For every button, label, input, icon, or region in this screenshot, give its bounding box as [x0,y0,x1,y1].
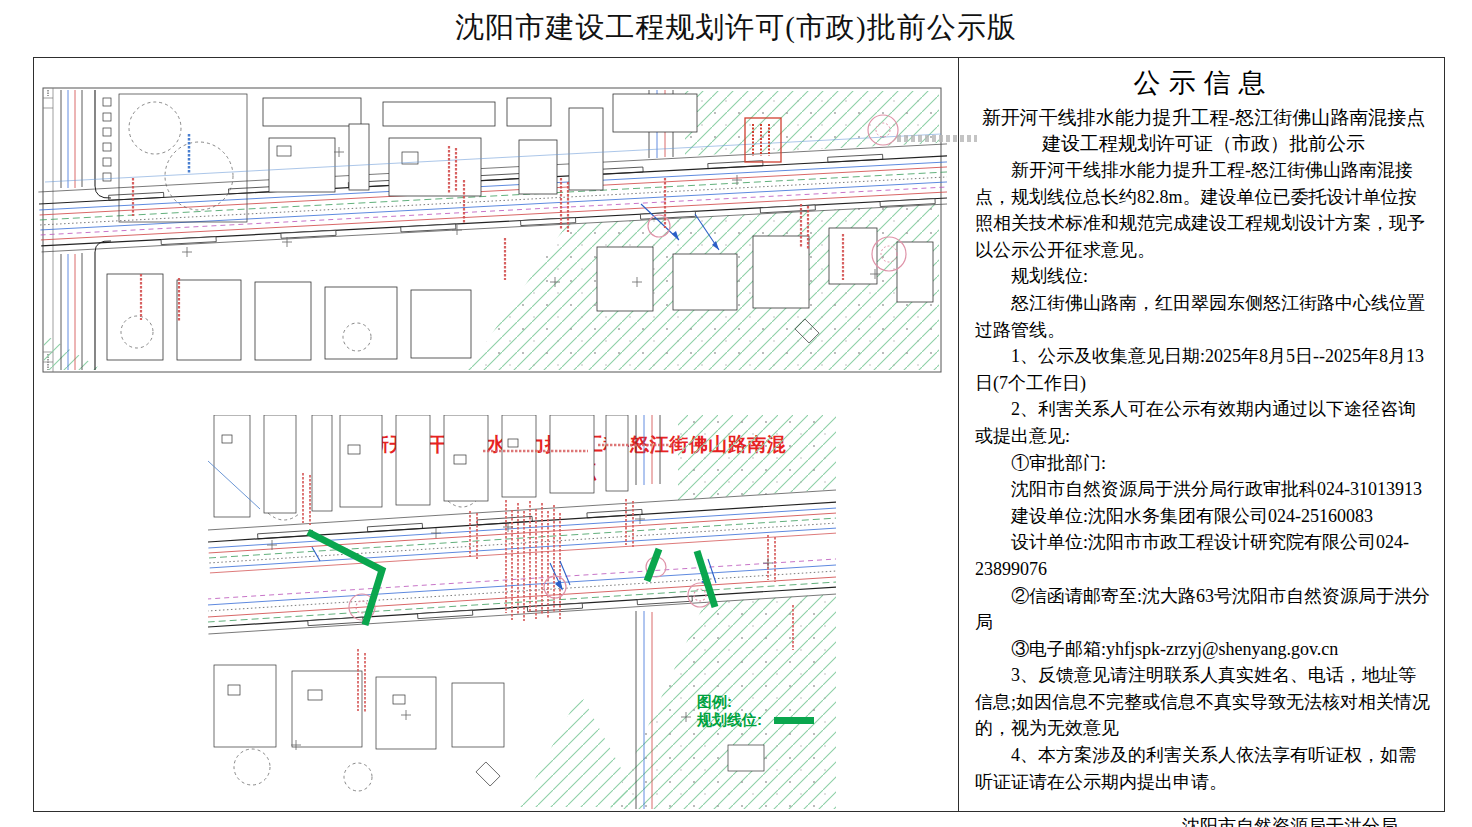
notice-panel: 公示信息 新开河干线排水能力提升工程-怒江街佛山路南混接点 建设工程规划许可证（… [958,57,1446,812]
notice-paragraph: 1、公示及收集意见日期:2025年8月5日--2025年8月13日(7个工作日) [975,343,1432,396]
notice-paragraph: 3、反馈意见请注明联系人真实姓名、电话，地址等信息;如因信息不完整或信息不真实导… [975,662,1432,742]
notice-paragraph: ②信函请邮寄至:沈大路63号沈阳市自然资源局于洪分局 [975,583,1432,636]
legend-item-label: 规划线位: [697,711,762,729]
notice-paragraph: 沈阳市自然资源局于洪分局行政审批科024-31013913 [975,476,1432,503]
legend-title: 图例: [697,693,814,711]
page-title: 沈阳市建设工程规划许可(市政)批前公示版 [0,8,1472,48]
signature-block: 沈阳市自然资源局于洪分局 2025年8月4日 [1182,811,1398,827]
site-plan-overview-map [37,82,947,374]
notice-paragraph: 新开河干线排水能力提升工程-怒江街佛山路南混接点，规划线位总长约82.8m。建设… [975,157,1432,263]
notice-paragraph: 建设单位:沈阳水务集团有限公司024-25160083 [975,503,1432,530]
notice-subtitle-line2: 建设工程规划许可证（市政）批前公示 [975,131,1432,157]
notice-paragraph: 设计单位:沈阳市市政工程设计研究院有限公司024-23899076 [975,529,1432,582]
notice-subtitle-line1: 新开河干线排水能力提升工程-怒江街佛山路南混接点 [975,105,1432,131]
notice-title: 公示信息 [975,65,1432,101]
public-notice-page: { "page": { "title": "沈阳市建设工程规划许可(市政)批前公… [0,0,1472,827]
map-legend: 图例: 规划线位: [697,693,814,729]
signature-org: 沈阳市自然资源局于洪分局 [1182,811,1398,827]
notice-paragraph: ③电子邮箱:yhfjspk-zrzyj@shenyang.gov.cn [975,636,1432,663]
buildings-north [214,415,628,520]
notice-body: 新开河干线排水能力提升工程-怒江街佛山路南混接点，规划线位总长约82.8m。建设… [975,157,1432,795]
planning-line-detail-map [208,415,836,809]
notice-paragraph: 怒江街佛山路南，红田翠园东侧怒江街路中心线位置过路管线。 [975,290,1432,343]
planning-line-swatch [774,717,814,724]
notice-paragraph: 2、利害关系人可在公示有效期内通过以下途径咨询或提出意见: [975,396,1432,449]
map-area: 新开河干线排水能力提升工程-怒江街佛山路南混接点 [33,57,958,812]
notice-paragraph: 4、本方案涉及的利害关系人依法享有听证权，如需听证证请在公示期内提出申请。 [975,742,1432,795]
notice-paragraph: ①审批部门: [975,450,1432,477]
notice-paragraph: 规划线位: [975,263,1432,290]
